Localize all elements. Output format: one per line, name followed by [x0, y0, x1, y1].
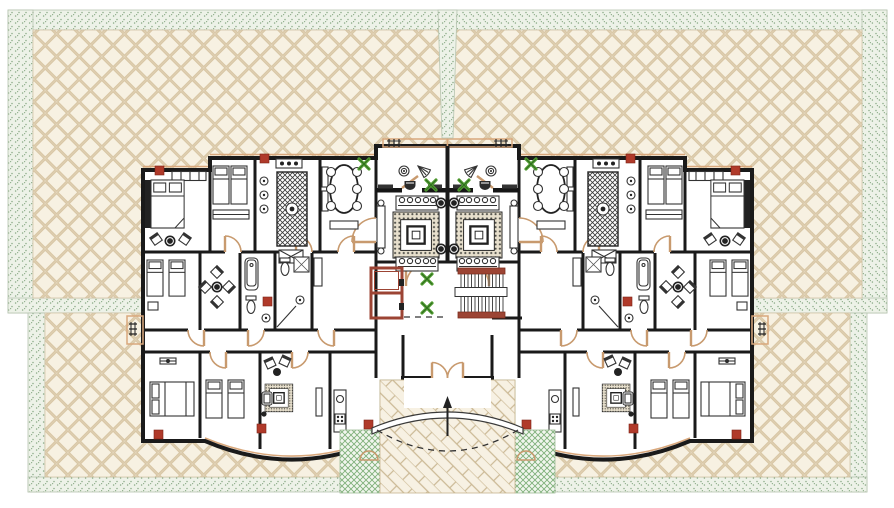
green-strip	[340, 430, 380, 493]
room-twin-bedroom	[213, 166, 249, 219]
entrance-forecourt	[372, 378, 523, 493]
floor-plan-page	[0, 0, 894, 508]
floor-plan-canvas	[0, 0, 894, 508]
room-kitchenette	[334, 390, 346, 432]
stair-landing	[455, 288, 507, 297]
